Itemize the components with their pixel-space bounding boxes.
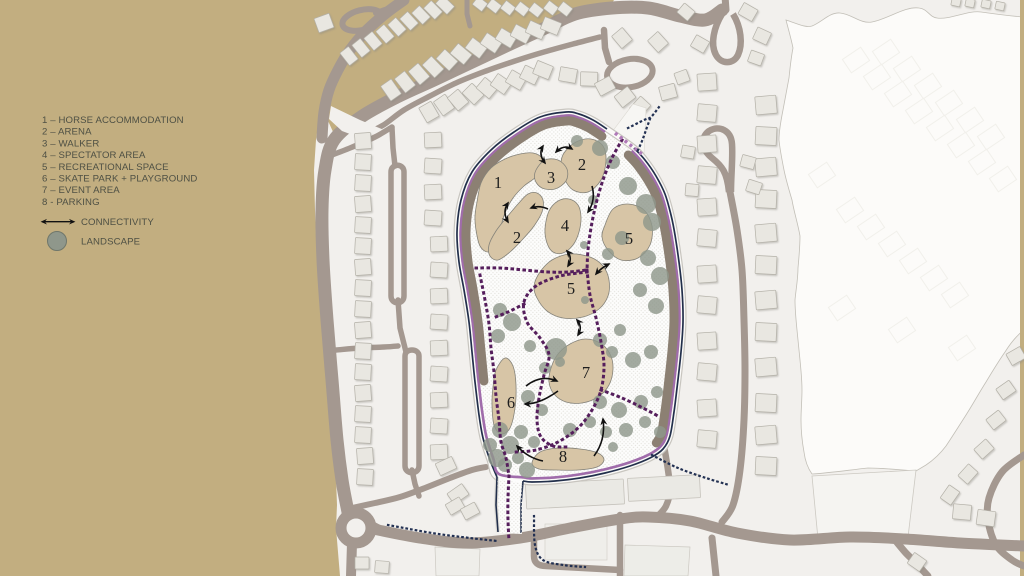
svg-text:6 – SKATE PARK + PLAYGROUND: 6 – SKATE PARK + PLAYGROUND [42,174,197,185]
svg-text:CONNECTIVITY: CONNECTIVITY [81,217,154,228]
svg-text:3: 3 [547,168,555,187]
svg-text:7 – EVENT AREA: 7 – EVENT AREA [42,185,120,196]
svg-text:5 – RECREATIONAL SPACE: 5 – RECREATIONAL SPACE [42,162,169,173]
svg-text:4: 4 [561,216,569,235]
svg-text:1: 1 [494,173,502,192]
svg-text:7: 7 [582,363,590,382]
svg-text:6: 6 [507,393,515,412]
svg-text:4 – SPECTATOR AREA: 4 – SPECTATOR AREA [42,150,146,161]
svg-text:2 – ARENA: 2 – ARENA [42,127,92,138]
svg-text:8 - PARKING: 8 - PARKING [42,197,100,208]
svg-text:5: 5 [567,279,575,298]
svg-text:8: 8 [559,447,567,466]
svg-text:2: 2 [578,155,586,174]
svg-text:LANDSCAPE: LANDSCAPE [81,237,140,248]
svg-text:5: 5 [625,229,633,248]
svg-text:3 – WALKER: 3 – WALKER [42,138,99,149]
svg-text:2: 2 [513,228,521,247]
svg-text:1 – HORSE ACCOMMODATION: 1 – HORSE ACCOMMODATION [42,115,184,126]
